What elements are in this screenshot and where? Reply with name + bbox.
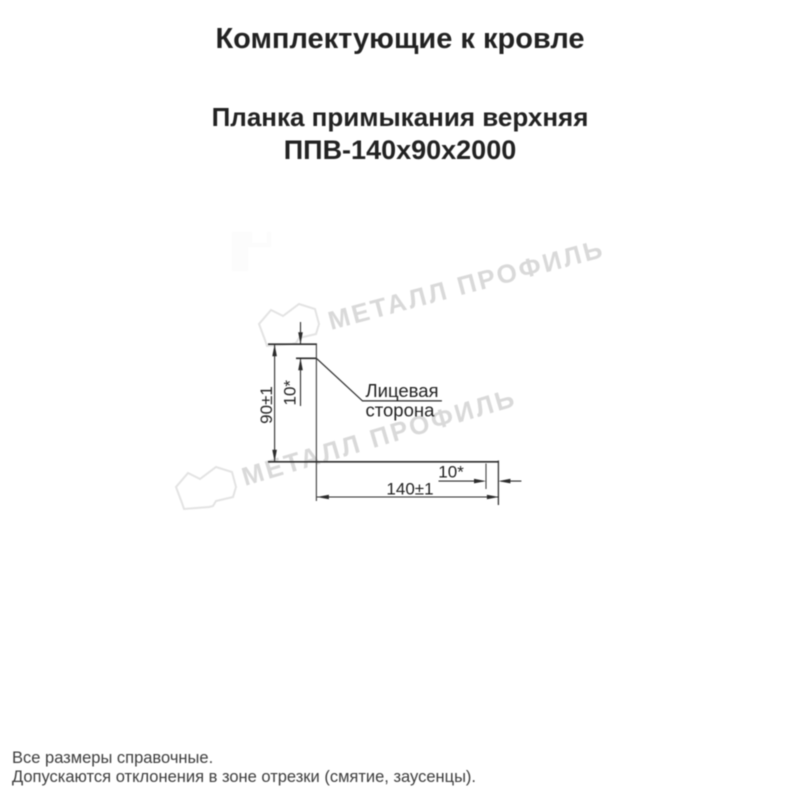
svg-text:10*: 10* [438,463,464,482]
svg-text:10*: 10* [281,380,300,406]
svg-text:МЕТАЛЛ ПРОФИЛЬ: МЕТАЛЛ ПРОФИЛЬ [325,233,608,336]
svg-text:Лицевая: Лицевая [366,380,439,401]
svg-text:140±1: 140±1 [386,480,433,499]
svg-text:сторона: сторона [366,399,436,420]
svg-text:90±1: 90±1 [257,386,276,424]
